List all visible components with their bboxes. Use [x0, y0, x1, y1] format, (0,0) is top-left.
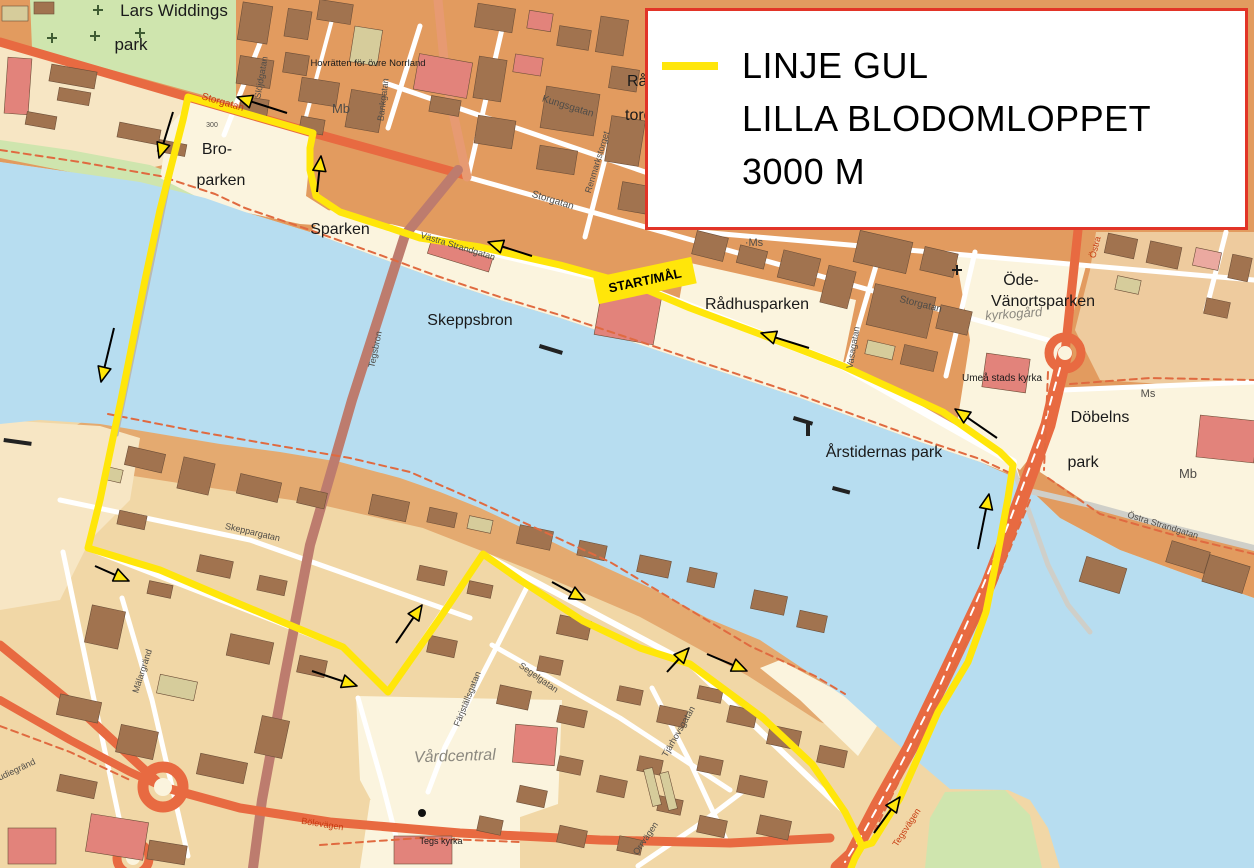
building [2, 6, 28, 21]
route-line-swatch [662, 62, 718, 70]
building [512, 724, 557, 766]
building [4, 57, 32, 115]
map-label-sparken: Sparken [310, 221, 370, 238]
pier-mark [806, 424, 810, 436]
legend-row-2: LILLA BLODOMLOPPET [662, 93, 1245, 146]
legend-row-3: 3000 M [662, 146, 1245, 199]
map-label-dobelns: Döbelns [1071, 409, 1130, 426]
building [284, 8, 312, 39]
map-label-dobelns-park: park [1067, 454, 1099, 471]
map-label-vardcentral: Vårdcentral [414, 746, 497, 767]
building [527, 10, 554, 32]
building [237, 2, 273, 44]
map-label-broparken-1: Bro- [202, 141, 232, 158]
legend-box: LINJE GUL LILLA BLODOMLOPPET 3000 M [645, 8, 1248, 230]
legend-route-name: LINJE GUL [742, 45, 929, 87]
legend-distance: 3000 M [742, 151, 865, 193]
map-label-skeppsbron: Skeppsbron [427, 312, 512, 329]
building [595, 16, 628, 56]
map-label-umea-stads-kyrka: Umeå stads kyrka [962, 372, 1042, 384]
map-label-num-300: 300 [206, 122, 218, 129]
map-label-radhusparken: Rådhusparken [705, 295, 809, 313]
building [177, 457, 215, 495]
map-label-ms-1: ·Ms [745, 237, 764, 249]
map-label-lars-widdings: Lars Widdings [120, 1, 228, 20]
legend-row-1: LINJE GUL [662, 40, 1245, 93]
map-label-broparken-2: parken [197, 172, 246, 189]
building [8, 828, 56, 864]
building [34, 2, 54, 14]
map-label-ms-2: Ms [1141, 388, 1156, 400]
church-dot-icon [418, 809, 426, 817]
roundabout-bole-1-center [154, 778, 172, 796]
roundabout-kyrkogatan-center [1058, 346, 1072, 360]
map-canvas: Lars WiddingsparkHovrätten för övre Norr… [0, 0, 1254, 868]
map-label-ode: Öde- [1003, 271, 1039, 289]
building [474, 115, 516, 149]
map-label-lars-widdings-park: park [114, 35, 148, 54]
building [283, 52, 310, 76]
legend-event-name: LILLA BLODOMLOPPET [742, 98, 1151, 140]
map-label-hovratten: Hovrätten för övre Norrland [310, 58, 425, 69]
building [1196, 415, 1254, 463]
map-label-arstidernas-park: Årstidernas park [826, 442, 943, 461]
map-label-mb-2: Mb [1179, 466, 1197, 481]
map-label-tegs-kyrka: Tegs kyrka [419, 836, 462, 846]
map-label-mb-1: Mb [332, 101, 350, 116]
